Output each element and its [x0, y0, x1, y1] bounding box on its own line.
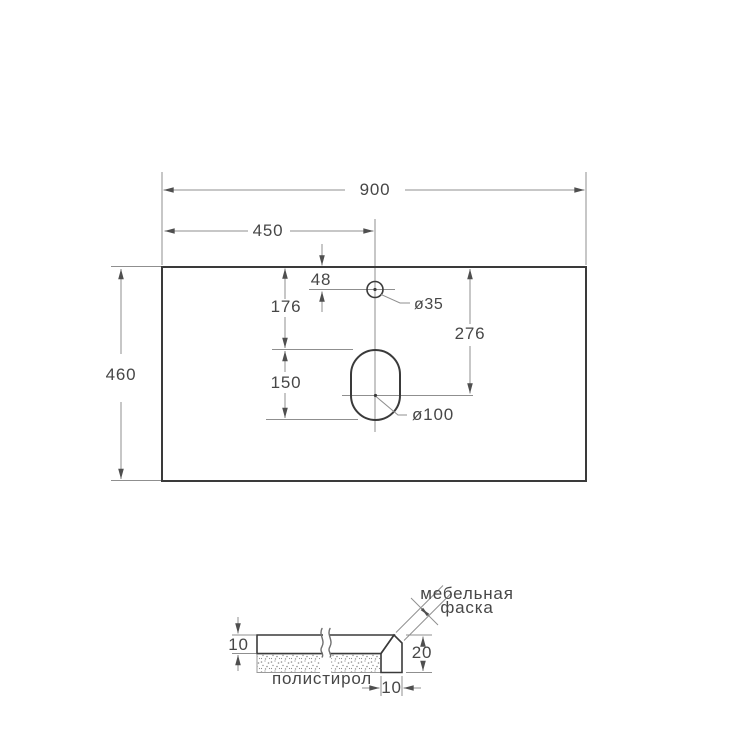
- filler-label: полистирол: [272, 669, 372, 688]
- section-view: 10 20 10 мебельная фаска: [228, 584, 513, 697]
- technical-drawing: 900 450 460 48 176 1: [0, 0, 750, 750]
- dim-depth: 460: [106, 269, 137, 479]
- chamfer-label-line2: фаска: [440, 598, 493, 617]
- drain-hole: ø100: [351, 350, 454, 424]
- dim-drain-center-offset: 276: [455, 269, 486, 394]
- dim-edge-height: 20: [406, 635, 432, 673]
- drain-length-label: 150: [271, 373, 302, 392]
- extension-lines: [111, 172, 586, 481]
- dim-drain-length: 150: [271, 351, 302, 418]
- centerline-offset-label: 450: [253, 221, 284, 240]
- top-view: 900 450 460 48 176 1: [106, 172, 586, 481]
- edge-width-label: 10: [381, 678, 402, 697]
- faucet-hole: ø35: [367, 282, 443, 314]
- drain-center-offset-label: 276: [455, 324, 486, 343]
- drawing-canvas: 900 450 460 48 176 1: [0, 0, 750, 750]
- dim-overall-width: 900: [164, 180, 585, 199]
- dim-faucet-edge-offset: 48: [311, 244, 332, 312]
- dim-centerline-offset: 450: [165, 221, 374, 240]
- overall-width-label: 900: [360, 180, 391, 199]
- chamfer-callout: мебельная фаска: [396, 584, 514, 641]
- edge-strip-section: [381, 635, 402, 673]
- faucet-hole-diameter-label: ø35: [414, 296, 443, 313]
- dim-top-thickness: 10: [228, 617, 256, 671]
- top-thickness-label: 10: [228, 635, 249, 654]
- break-lines: [320, 628, 331, 674]
- depth-label: 460: [106, 365, 137, 384]
- countertop-outline: [162, 267, 586, 481]
- drain-top-offset-label: 176: [271, 297, 302, 316]
- drain-hole-diameter-label: ø100: [412, 405, 454, 424]
- edge-height-label: 20: [412, 643, 433, 662]
- faucet-edge-offset-label: 48: [311, 270, 332, 289]
- dim-drain-top-offset: 176: [271, 269, 302, 349]
